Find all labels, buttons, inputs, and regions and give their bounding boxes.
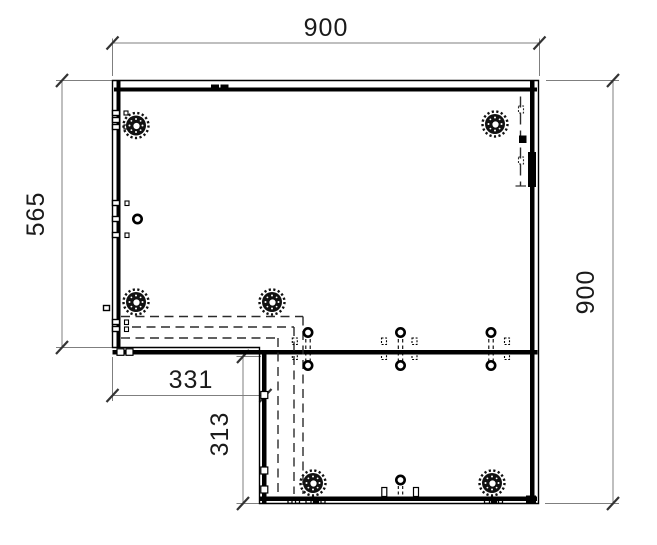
edge-band-step [262,350,267,503]
bottom-edge-hole-group [382,476,419,497]
dimension-label-right-height: 900 [572,270,600,315]
edge-banding [113,81,538,504]
corner-joint-block [526,496,536,505]
dimension-top-width [107,37,546,77]
dimension-label-notch-width: 331 [169,366,214,394]
cam-lock-fittings [124,112,508,496]
panel-junction-line [113,350,538,355]
edge-band-top [114,88,537,92]
dimension-label-left-height: 565 [22,192,50,237]
drill-hole [487,328,495,336]
edge-band-right [530,81,535,503]
drill-hole [396,361,404,369]
dimension-label-notch-depth: 313 [206,412,234,457]
cam-lock-fitting [483,112,508,137]
dimension-notch-depth [237,350,262,510]
hinge-pin-mark [519,136,527,144]
drill-hole [304,328,312,336]
drill-hole [304,361,312,369]
drill-hole [396,476,404,484]
cam-lock-fitting [301,471,326,496]
panel-outline [113,81,539,504]
top-edge-marker [211,85,219,89]
cam-lock-fitting [480,471,505,496]
drill-hole [487,361,495,369]
panel-drawing: 900 565 900 331 313 [0,0,657,545]
drill-hole [396,328,404,336]
junction-hole-group [292,328,509,369]
cam-lock-fitting [124,113,149,138]
cam-lock-fitting [260,290,285,315]
cam-lock-fitting [124,290,149,315]
cad-drawing-canvas: 900 565 900 331 313 [0,0,657,545]
wall-bracket-plate [528,152,536,187]
shelf-pin-hole [133,215,141,223]
hidden-edge-lines [121,317,303,495]
top-edge-marker [221,85,229,89]
dimension-label-overall-width: 900 [304,14,349,42]
hidden-hinge-line [516,97,527,187]
dimension-left-height [56,74,112,354]
